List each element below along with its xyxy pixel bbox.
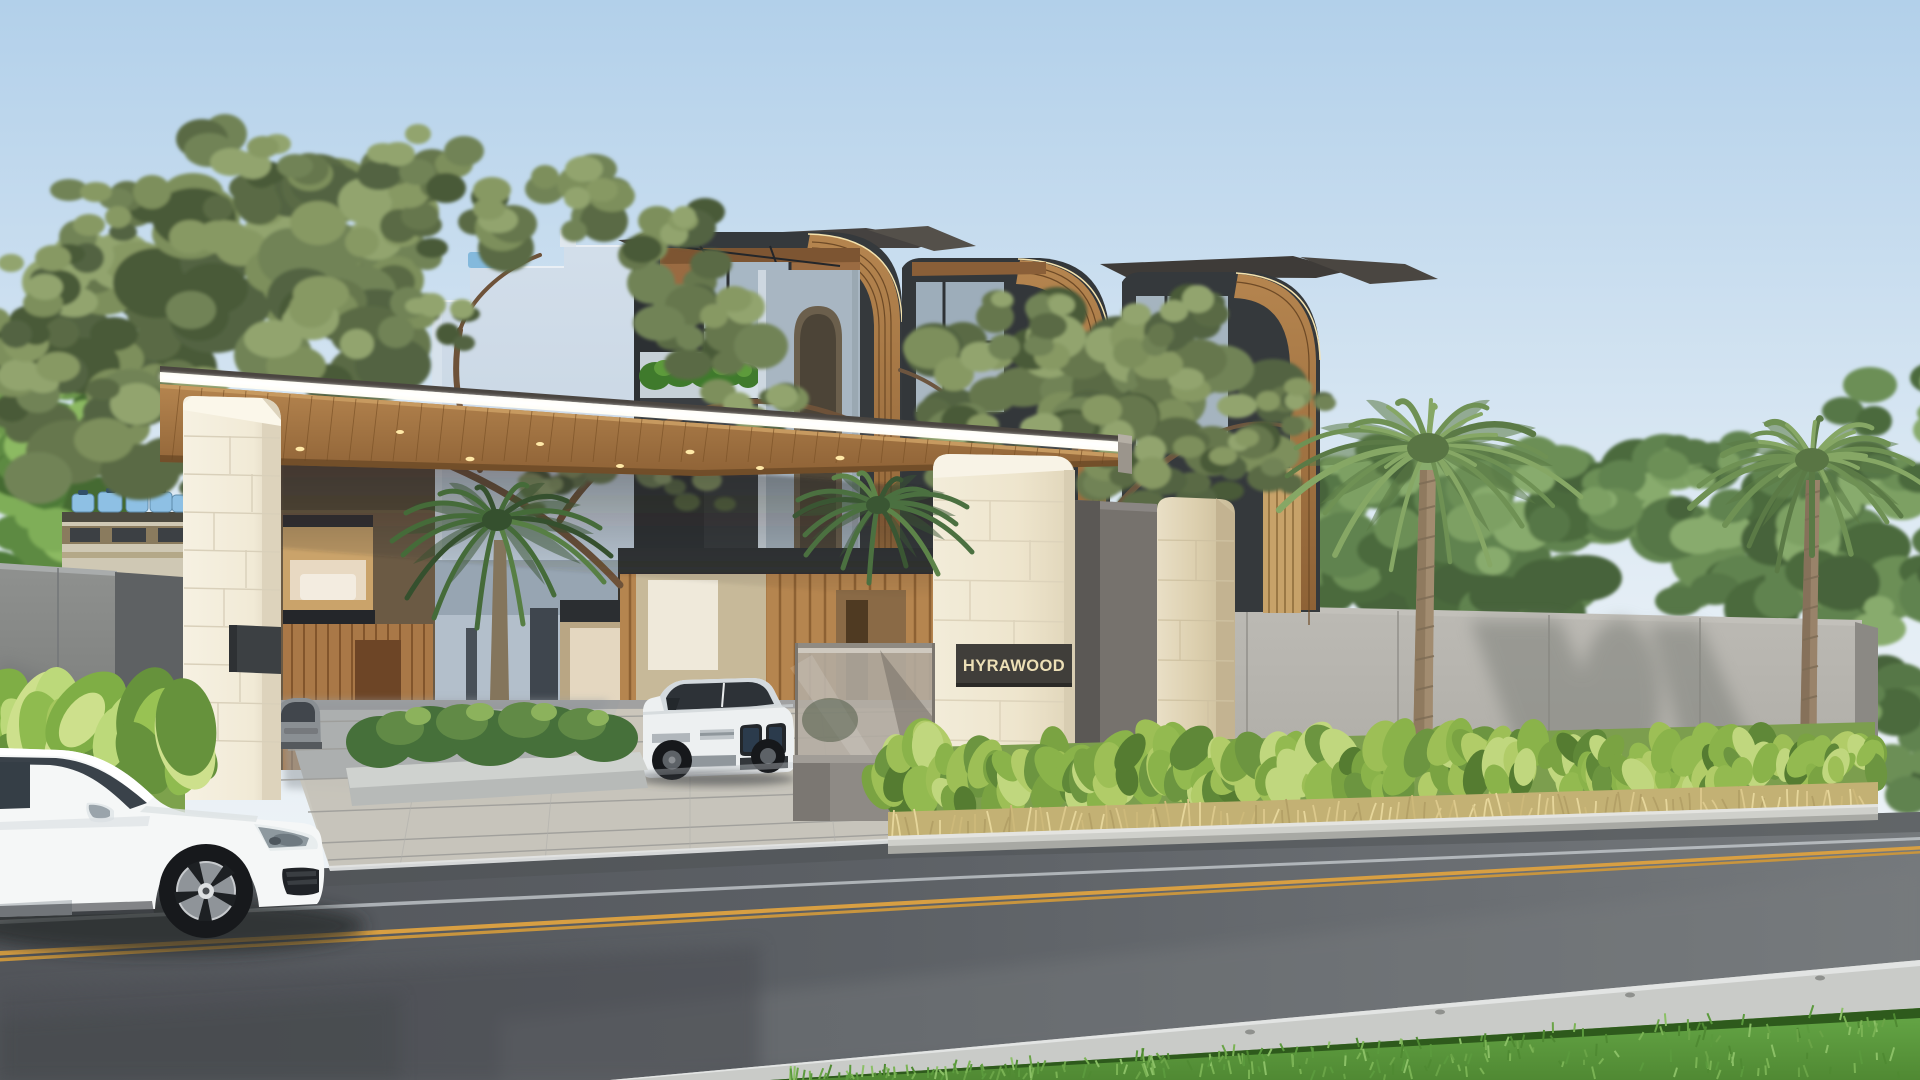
- svg-text:HYRAWOOD: HYRAWOOD: [963, 657, 1065, 675]
